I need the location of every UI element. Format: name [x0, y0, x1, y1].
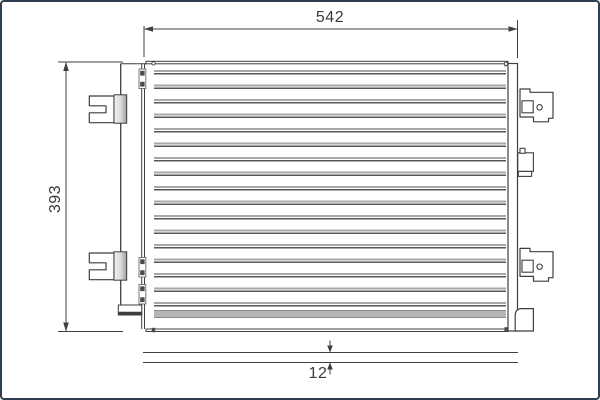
left-clip-upper: [89, 95, 126, 123]
arrow-right-icon: [509, 26, 518, 31]
condenser-drawing: [0, 0, 600, 400]
arrow-down-icon: [63, 323, 69, 332]
dimension-label-width: 542: [300, 10, 360, 26]
drawing-canvas: 542 393 12: [0, 0, 600, 400]
left-clip-lower: [89, 252, 126, 280]
right-fitting-bottom: [515, 309, 533, 331]
dimension-label-depth: 12: [302, 366, 334, 382]
condenser-outline: [118, 61, 517, 332]
right-fitting-middle: [518, 148, 534, 176]
arrow-left-icon: [144, 26, 153, 31]
right-bracket-lower: [520, 248, 553, 281]
dimension-label-height: 393: [48, 169, 64, 229]
arrow-up-icon: [63, 62, 69, 71]
arrow-down-icon: [327, 346, 333, 353]
depth-view-lines: [143, 353, 518, 363]
right-bracket-upper: [520, 89, 553, 122]
